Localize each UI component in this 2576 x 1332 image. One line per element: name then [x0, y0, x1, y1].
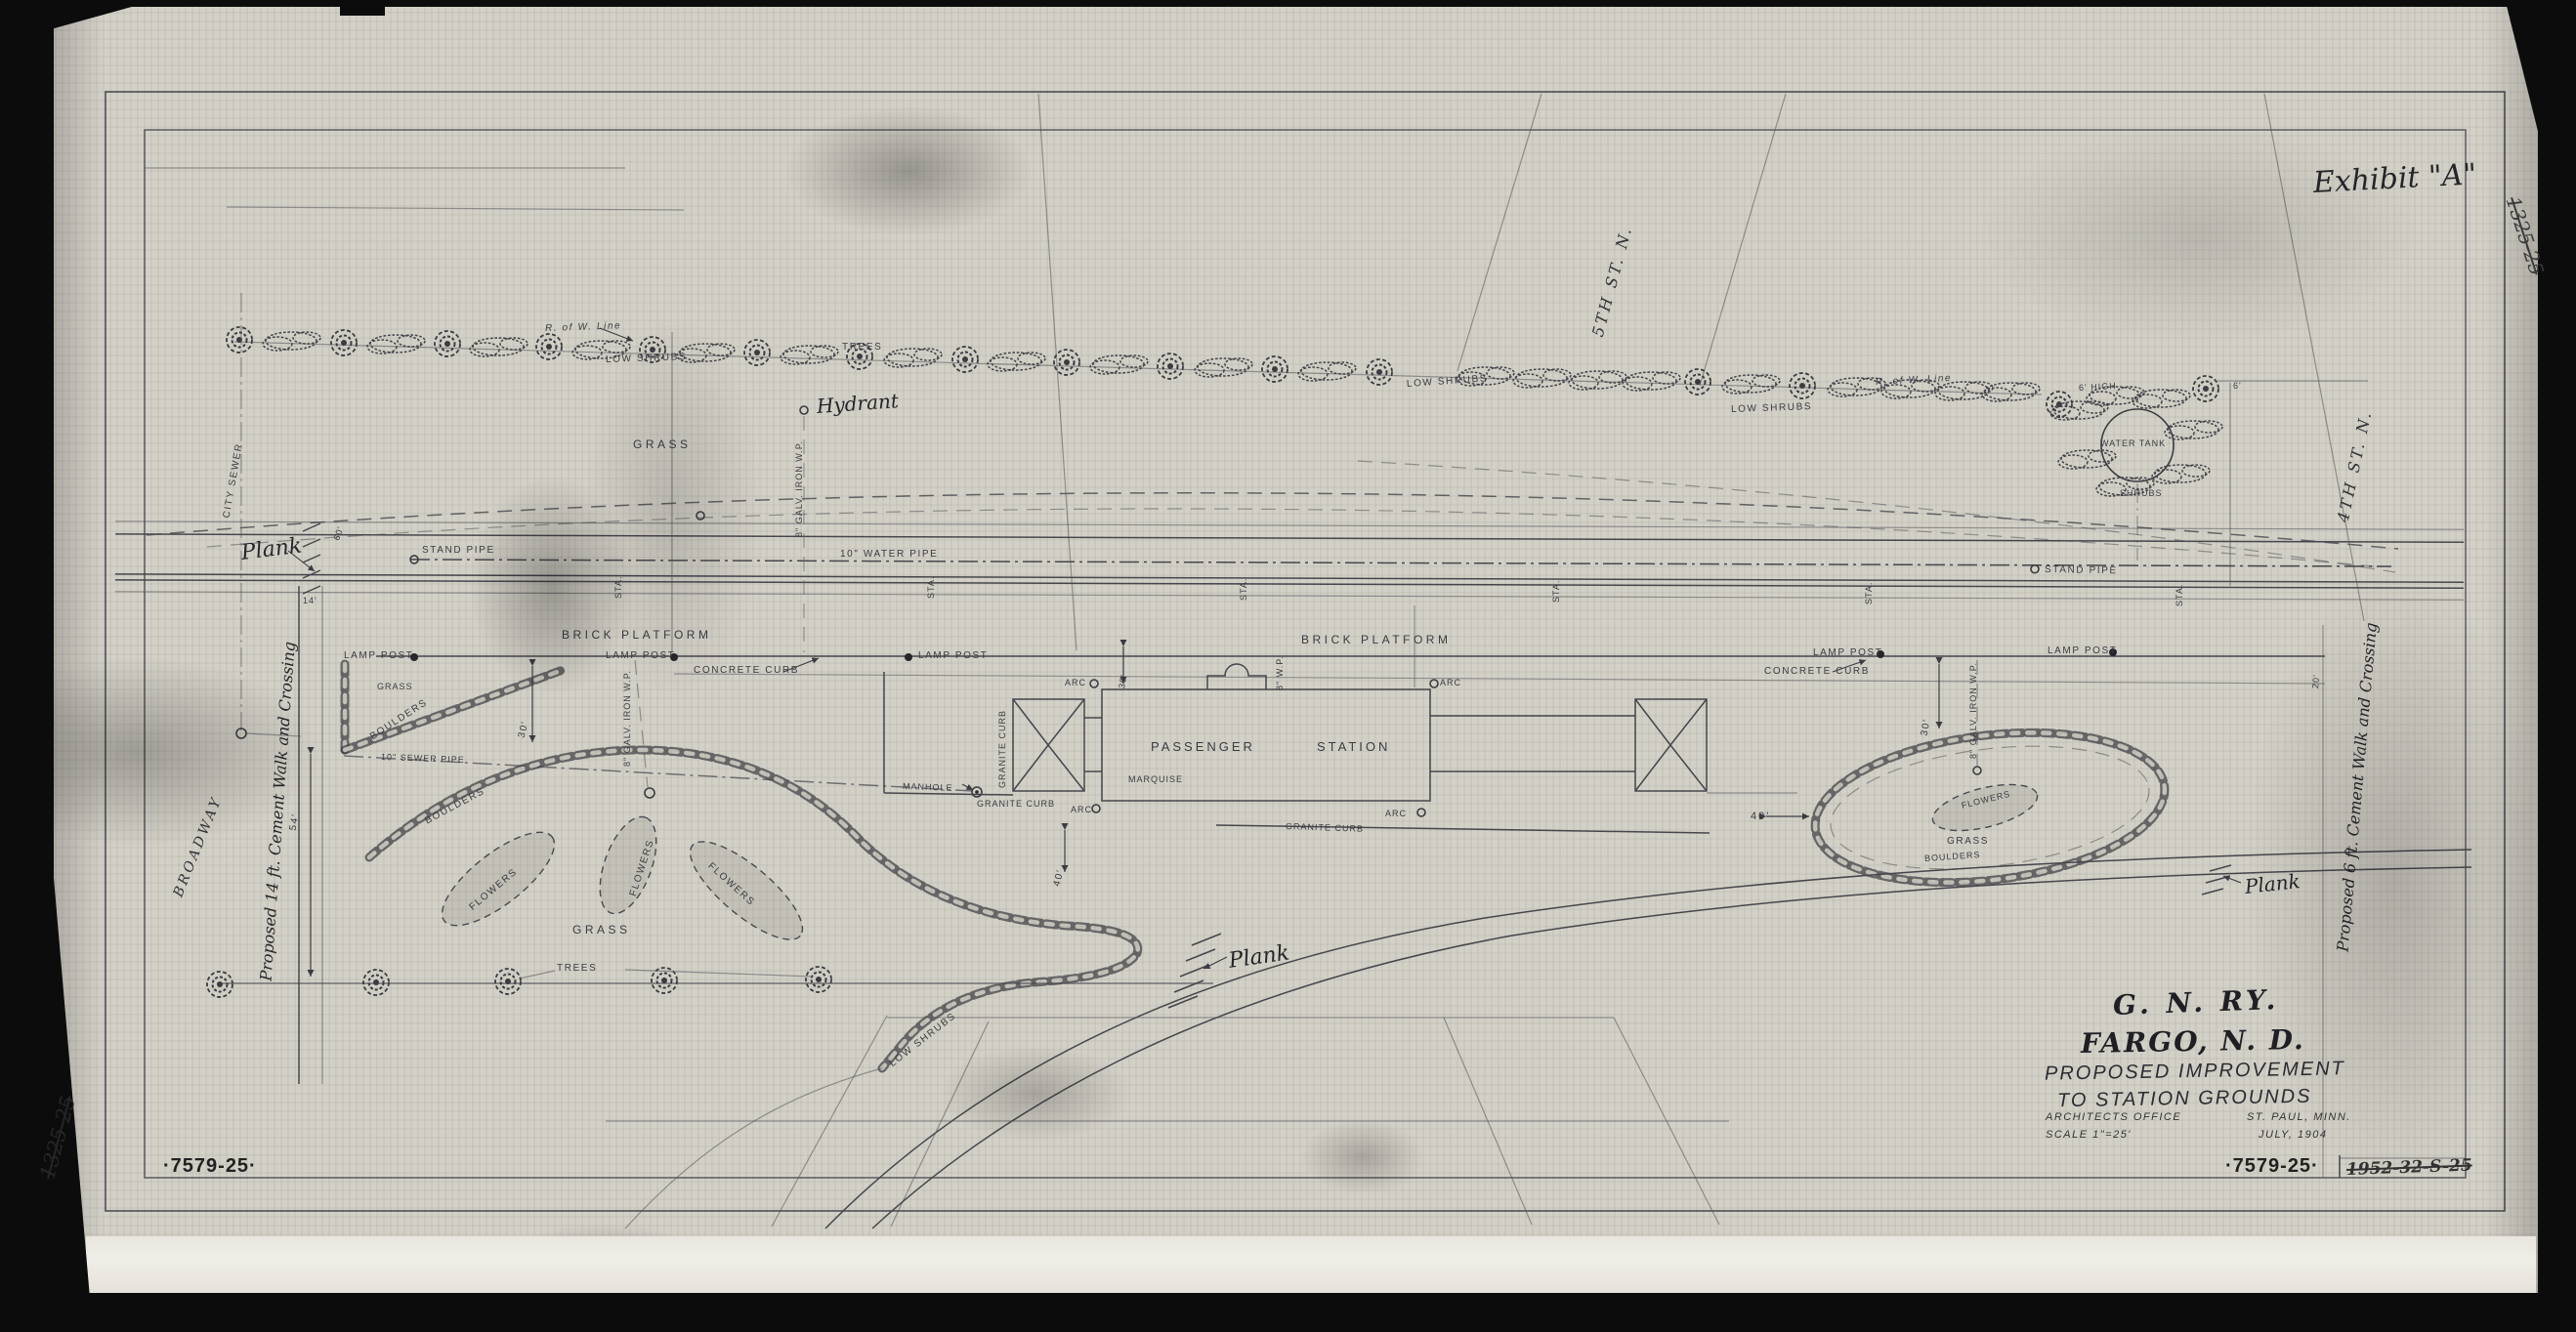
- sta-marker: STA.: [613, 576, 623, 599]
- galv-pipe-label: 8" GALV. IRON W.P.: [1968, 662, 1978, 759]
- trees-label: TREES: [842, 342, 882, 353]
- trees-label: TREES: [557, 963, 597, 974]
- sta-marker: STA.: [1239, 578, 1248, 601]
- dim-20ft: 20': [2310, 674, 2321, 689]
- dim-6ft: 6': [2233, 381, 2242, 391]
- title-subtitle-2: TO STATION GROUNDS: [2057, 1086, 2312, 1113]
- grass-label: GRASS: [633, 437, 692, 451]
- brick-platform-label: BRICK PLATFORM: [562, 628, 711, 642]
- station-label: STATION: [1317, 739, 1390, 754]
- water-tank-label: WATER TANK: [2100, 438, 2166, 448]
- sta-marker: STA.: [1551, 580, 1561, 603]
- scan-notch-top: [340, 0, 385, 16]
- arc-lamp-label: ARC: [1385, 809, 1407, 818]
- marquise-label: MARQUISE: [1128, 774, 1183, 784]
- title-scale: SCALE 1"=25': [2046, 1129, 2132, 1141]
- sheet-number: ·7579-25·: [163, 1155, 257, 1178]
- granite-curb-label: GRANITE CURB: [997, 710, 1007, 788]
- manhole-label: MANHOLE: [903, 781, 953, 793]
- concrete-curb-label: CONCRETE CURB: [1764, 666, 1870, 677]
- sta-marker: STA.: [2175, 584, 2184, 606]
- grass-label: GRASS: [377, 682, 413, 691]
- grass-label: GRASS: [572, 923, 631, 937]
- dim-14ft: 14': [303, 596, 317, 605]
- stand-pipe-label: STAND PIPE: [2045, 564, 2118, 576]
- plan-linework: [0, 0, 2576, 1332]
- lamp-post-label: LAMP POST: [606, 650, 675, 661]
- arc-lamp-label: ARC: [1071, 805, 1092, 814]
- sta-marker: STA.: [1864, 582, 1874, 604]
- concrete-curb-label: CONCRETE CURB: [694, 665, 799, 676]
- arc-lamp-label: ARC: [1440, 678, 1461, 687]
- title-city: FARGO, N. D.: [2081, 1023, 2305, 1060]
- sta-marker: STA.: [926, 576, 936, 599]
- title-railway: G. N. RY.: [2112, 983, 2279, 1021]
- sheet-number: ·7579-25·: [2225, 1155, 2319, 1178]
- title-office-location: ST. PAUL, MINN.: [2247, 1111, 2351, 1123]
- granite-curb-label: GRANITE CURB: [977, 799, 1055, 809]
- water-tank: [2047, 376, 2222, 561]
- stand-pipe-label: STAND PIPE: [422, 545, 495, 556]
- galv-pipe-label: 8" GALV. IRON W.P.: [622, 670, 632, 767]
- dim-40ft: 40': [1751, 811, 1770, 822]
- scanned-blueprint: R. of W. Line R. of W. Line LOW SHRUBS L…: [0, 0, 2576, 1332]
- lamp-post-label: LAMP POST: [1813, 647, 1882, 658]
- galv-pipe-label: 8" GALV. IRON W.P.: [794, 440, 804, 537]
- shrubs-label: SHRUBS: [2120, 488, 2163, 498]
- scan-margin-top: [0, 0, 2576, 7]
- lamp-post-label: LAMP POST: [344, 650, 413, 661]
- passenger-label: PASSENGER: [1151, 739, 1255, 754]
- arc-lamp-label: ARC: [1065, 678, 1086, 687]
- track-lines: [115, 521, 2464, 600]
- scan-margin-bottom: [0, 1293, 2576, 1332]
- tree-row: [227, 327, 2042, 401]
- right-oval-bed: [1806, 715, 2173, 901]
- water-pipe-label: 10" WATER PIPE: [840, 549, 938, 560]
- lamp-post-label: LAMP POST: [918, 650, 988, 661]
- paper-edge-strip: [86, 1236, 2536, 1293]
- title-date: JULY, 1904: [2259, 1129, 2327, 1141]
- lamp-post-label: LAMP POST: [2048, 645, 2117, 656]
- walks-and-pipes: [236, 293, 1981, 1084]
- tank-height-label: 6' HIGH: [2079, 381, 2117, 393]
- brick-platform-label: BRICK PLATFORM: [1301, 633, 1451, 646]
- scan-margin-right: [2538, 0, 2576, 1332]
- title-office: ARCHITECTS OFFICE: [2046, 1111, 2181, 1123]
- pipe-8wp-label: 8" W.P.: [1275, 655, 1285, 690]
- grass-label: GRASS: [1947, 836, 1989, 847]
